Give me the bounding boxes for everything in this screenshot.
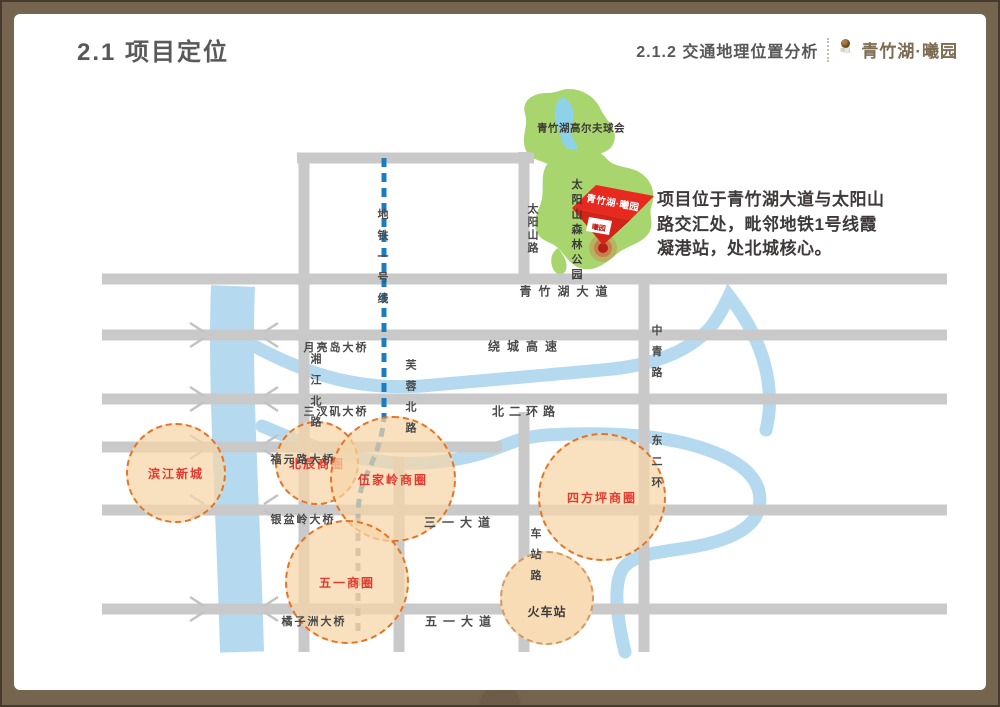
label-chezhan-rd: 车站路 [527, 528, 543, 591]
circle-label: 滨江新城 [148, 465, 204, 482]
xiangjiang-river [232, 286, 242, 652]
label-metro-line1: 地铁一号线 [374, 209, 390, 314]
label-qingzhuhu-avenue: 青竹湖大道 [519, 283, 614, 300]
annotation-line: 路交汇处，毗邻地铁1号线霞 [657, 213, 987, 238]
label-bridge-yinpenling: 银盆岭大桥 [271, 511, 336, 527]
circle-label: 四方坪商圈 [567, 489, 637, 506]
label-east-2nd-ring: 东二环 [648, 435, 664, 498]
label-zhongqing-rd: 中青路 [648, 325, 664, 388]
label-ring-expressway: 绕城高速 [488, 338, 564, 355]
label-bridge-juzizhou: 橘子洲大桥 [282, 613, 347, 629]
label-north-2nd-ring: 北二环路 [492, 403, 560, 420]
label-furong-north-rd: 芙蓉北路 [402, 359, 418, 443]
page: { "slide": { "title": "2.1 项目定位", "heade… [0, 0, 1000, 707]
label-wuyi-avenue: 五一大道 [425, 613, 497, 630]
circle-sifangping: 四方坪商圈 [538, 433, 666, 561]
golf-club-label: 青竹湖高尔夫球会 [537, 121, 625, 136]
label-xiangjiang-north-rd: 湘江北路 [307, 353, 323, 437]
annotation-line: 凝港站，处北城核心。 [657, 237, 987, 262]
label-taiyangshan-rd: 太阳山路 [524, 203, 540, 255]
project-annotation: 项目位于青竹湖大道与太阳山 路交汇处，毗邻地铁1号线霞 凝港站，处北城核心。 [657, 188, 987, 262]
circle-binjiang-newtown: 滨江新城 [126, 423, 226, 523]
circle-label: 五一商圈 [319, 574, 375, 591]
label-sanyi-avenue: 三一大道 [424, 514, 496, 531]
annotation-line: 项目位于青竹湖大道与太阳山 [657, 188, 987, 213]
forest-park-label: 太阳山森林公园 [568, 179, 584, 284]
circle-label: 伍家岭商圈 [358, 471, 428, 488]
railway-station-label: 火车站 [527, 603, 566, 620]
label-bridge-fuyuanlu: 福元路大桥 [271, 451, 336, 467]
slide-frame: 2.1 项目定位 2.1.2 交通地理位置分析 曦园 青竹湖·曦园 [0, 0, 1000, 707]
railway-station-circle: 火车站 [500, 551, 594, 645]
slide: 2.1 项目定位 2.1.2 交通地理位置分析 曦园 青竹湖·曦园 [14, 14, 986, 690]
